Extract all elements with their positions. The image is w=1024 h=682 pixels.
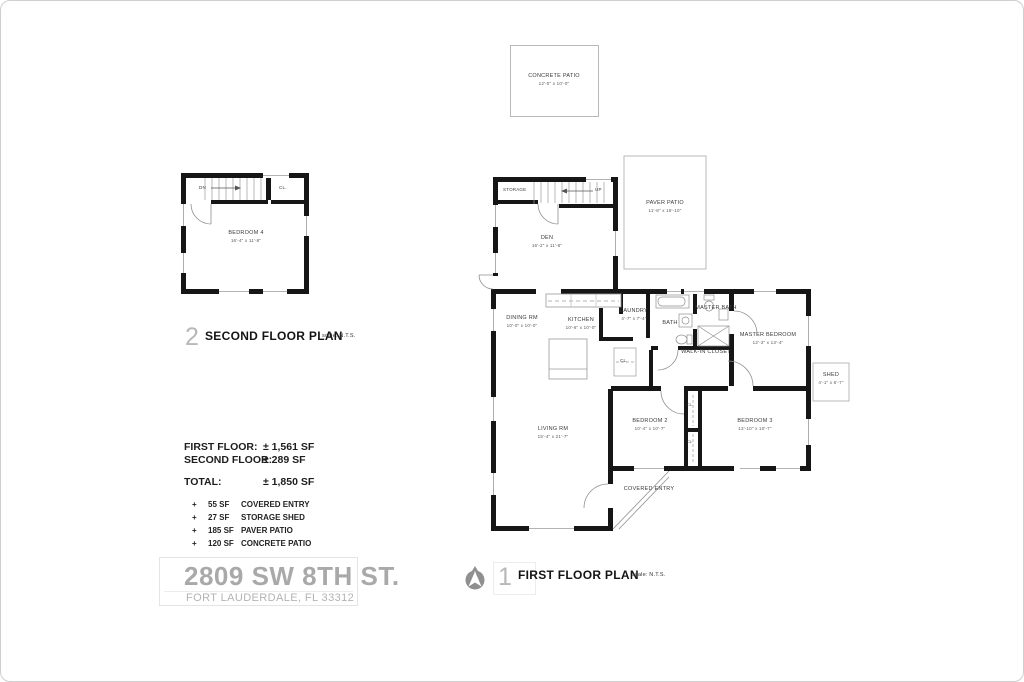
floor-plan-sheet: CONCRETE PATIO 12'-0" x 10'-0" DN CL. BE…: [0, 0, 1024, 682]
covered-entry-label: COVERED ENTRY: [624, 486, 675, 494]
master-bath-label: MASTER BATH: [695, 305, 736, 313]
bedroom3-label: BEDROOM 3 13'-10" x 10'-7": [737, 418, 772, 432]
living-room-label: LIVING RM 15'-4" x 21'-7": [538, 426, 569, 440]
kitchen-label: KITCHEN 10'-6" x 10'-0": [566, 317, 597, 331]
closet-label-2f: CL.: [279, 185, 287, 190]
bathtub: [656, 295, 689, 308]
extra-area-concrete-patio: +120 SFCONCRETE PATIO: [192, 539, 311, 548]
extra-area-covered-entry: +55 SFCOVERED ENTRY: [192, 500, 310, 509]
extra-area-paver-patio: +185 SFPAVER PATIO: [192, 526, 293, 535]
master-bedroom-label: MASTER BEDROOM 12'-2" x 13'-4": [740, 332, 796, 346]
concrete-patio-label: CONCRETE PATIO 12'-0" x 10'-0": [528, 73, 580, 87]
closet-a-label: CL: [687, 402, 693, 407]
shed-label: SHED 4'-1" x 6'-7": [818, 372, 843, 386]
bedroom4-label: BEDROOM 4 16'-4" x 11'-8": [228, 230, 263, 244]
second-floor-plan-number: 2: [185, 325, 199, 350]
stairs-down: [205, 178, 261, 200]
storage-label: STORAGE: [503, 187, 526, 192]
paver-patio-label: PAVER PATIO 11'-8" x 15'-10": [646, 200, 684, 214]
stairs-dn-label: DN: [199, 185, 206, 190]
walkin-closet-label: WALK-IN CLOSET: [681, 349, 731, 357]
north-arrow-icon: [462, 564, 488, 592]
hall-closet-label: CL.: [620, 358, 628, 363]
address-line1: 2809 SW 8TH ST.: [184, 561, 400, 592]
door-arc: [191, 204, 211, 224]
bath-toilet: [676, 335, 692, 344]
laundry-label: LAUNDRY 4'-7" x 7'-4": [620, 308, 648, 322]
first-floor-plan-number: 1: [498, 565, 512, 590]
address-line2: FORT LAUDERDALE, FL 33312: [186, 592, 354, 604]
kitchen-counter: [546, 294, 621, 307]
stairs-up: [534, 182, 604, 204]
closet-b-label: CL: [687, 439, 693, 444]
first-floor-plan-title: FIRST FLOOR PLAN: [518, 568, 639, 582]
stairs-up-label: UP: [595, 187, 602, 192]
area-row-first-floor: FIRST FLOOR:± 1,561 SF: [184, 441, 314, 453]
covered-entry-lines: [613, 471, 669, 529]
dining-label: DINING RM 10'-0" x 10'-0": [506, 315, 538, 329]
kitchen-island: [549, 339, 587, 379]
master-bath-shower: [698, 326, 729, 346]
address-block: 2809 SW 8TH ST. FORT LAUDERDALE, FL 3331…: [159, 557, 358, 606]
area-row-second-floor: SECOND FLOOR:± 289 SF: [184, 454, 306, 466]
first-floor-plan-scale: scale: N.T.S.: [632, 572, 665, 578]
den-label: DEN 16'-2" x 11'-8": [532, 235, 562, 249]
bedroom2-label: BEDROOM 2 10'-4" x 10'-7": [632, 418, 667, 432]
bath-label: BATH: [662, 320, 677, 328]
bath-sink: [679, 314, 692, 327]
second-floor-plan-scale: scale: N.T.S.: [322, 333, 355, 339]
extra-area-storage-shed: +27 SFSTORAGE SHED: [192, 513, 305, 522]
area-row-total: TOTAL:± 1,850 SF: [184, 476, 314, 488]
